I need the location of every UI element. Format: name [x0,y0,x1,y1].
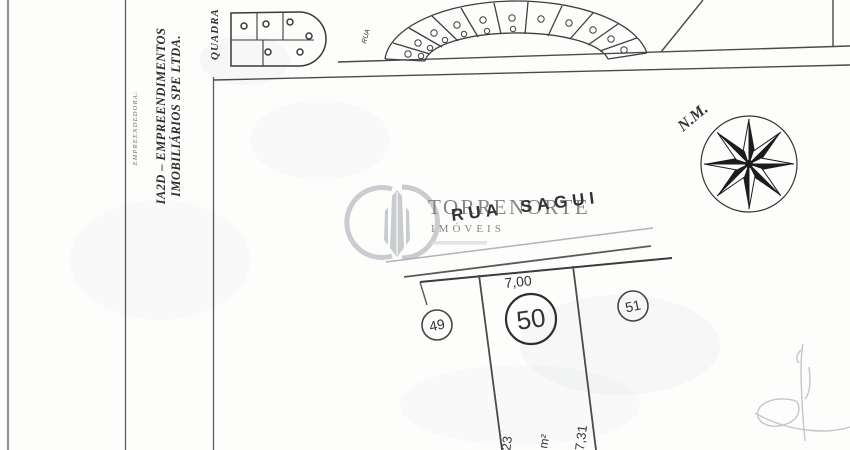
area-unit-label: m² [536,433,552,449]
street-name-label: RUA SAGUI [450,188,600,225]
north-label: N.M. [674,100,712,135]
boundary-diagonal-line [661,0,703,52]
street-far-edge-line [386,228,653,262]
quadra-label: QUADRA [209,8,221,60]
right-side-dimension-label: 27,31 [571,424,590,450]
watermark-category-text: IMÓVEIS [431,223,505,235]
developer-role-label: EMPREENDEDORA: [132,68,144,188]
lot-49-number: 49 [428,316,447,335]
lot-50-number: 50 [515,302,548,336]
upper-road-lines [214,46,850,80]
survey-plan-page: QUADRA RUA [0,0,850,450]
margin-pencil-sketch [755,344,850,441]
torrenorte-tower-icon [347,187,438,258]
minor-street-label: RUA [361,28,372,44]
developer-company-name: IA2D – EMPREENDIMENTOS IMOBILIÁRIOS SPE … [154,10,186,222]
lot-49-marker: 49 [422,310,452,340]
watermark-tagline-rule [431,241,487,245]
left-side-dimension-label: 25,23 [496,435,515,450]
plan-drawing: QUADRA RUA [0,0,850,450]
company-name-line2: IMOBILIÁRIOS SPE LTDA. [169,10,184,222]
front-dimension-label: 7,00 [504,272,533,291]
fan-lot-block [385,1,647,61]
compass-rose [701,116,797,212]
company-name-line1: IA2D – EMPREENDIMENTOS [154,10,169,222]
lot-49-left-line [420,282,427,305]
